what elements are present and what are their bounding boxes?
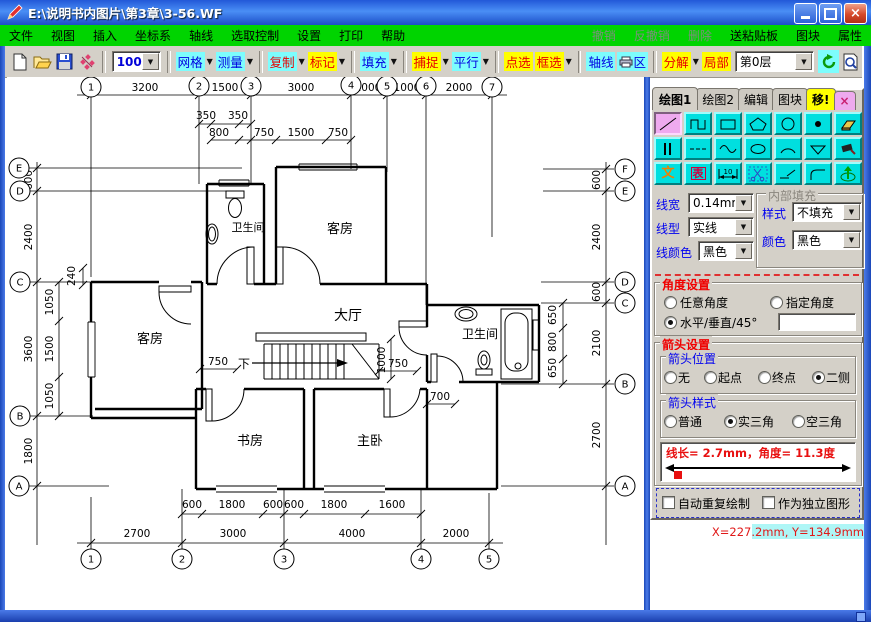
measure-button[interactable]: 测量 (216, 52, 245, 71)
axis-bubble-label: 3 (281, 555, 287, 566)
tab-edit[interactable]: 编辑 (738, 88, 774, 110)
tool-extend-button[interactable] (774, 162, 802, 185)
arrow-pos-start-radio[interactable] (704, 371, 717, 384)
chord-icon (808, 141, 828, 157)
dimension-label: 750 (254, 127, 274, 139)
dimension-label: 1800 (23, 438, 35, 465)
print-preview-icon (842, 53, 859, 71)
dimension-label: 2400 (591, 224, 603, 251)
tool-curve-button[interactable] (714, 137, 742, 160)
tool-table-button[interactable]: 表 (684, 162, 712, 185)
arrow-position-title: 箭头位置 (666, 350, 718, 367)
tool-dashed-line-button[interactable] (684, 137, 712, 160)
dimension-icon: 10 (717, 166, 739, 182)
line-type-value: 实线 (689, 219, 721, 236)
fill-style-label: 样式 (762, 205, 786, 222)
independent-checkbox[interactable] (762, 496, 775, 509)
dimension-label: 650 (547, 358, 559, 378)
line-width-label: 线宽 (656, 196, 680, 213)
svg-text:10: 10 (724, 168, 733, 176)
panel-tabs: 绘图1 绘图2 编辑 图块 移! × (652, 90, 862, 110)
zoom-combobox[interactable]: 100% ▼ (112, 51, 161, 72)
title-bar[interactable]: E:\说明书内图片\第3章\3-56.WF × (0, 0, 871, 25)
menu-bar: 文件 视图 插入 坐标系 轴线 选取控制 设置 打印 帮助 撤销 反撤销 删除 … (0, 25, 871, 46)
toolbar-separator (403, 51, 407, 73)
dimension-label: 350 (196, 110, 216, 122)
doors (159, 247, 463, 421)
dimension-label: 600 (284, 499, 304, 511)
dimension-label: 4000 (339, 528, 366, 540)
dimension-label: 3600 (23, 336, 35, 363)
toilet-tank (226, 191, 244, 198)
text-tool-glyph: 文 (661, 167, 674, 180)
axis-bubble-label: 3 (248, 82, 254, 93)
tool-polygon-button[interactable] (744, 112, 772, 135)
stair-direction-arrow (337, 359, 348, 367)
brush-icon (838, 141, 858, 157)
dimension-label: 3000 (220, 528, 247, 540)
fill-style-value: 不填充 (793, 204, 837, 221)
scissors-icon (748, 166, 768, 182)
line-info-text: 线长= 2.7mm，角度= 11.3度 (666, 445, 835, 461)
window-title: E:\说明书内图片\第3章\3-56.WF (28, 3, 222, 22)
menu-redo[interactable]: 反撤销 (625, 25, 679, 46)
dimension-label: 600 (591, 170, 603, 190)
tool-dimension-button[interactable]: 10 (714, 162, 742, 185)
dimension-label: 1800 (219, 499, 246, 511)
menu-view[interactable]: 视图 (42, 25, 84, 46)
frame-bottom-border (0, 610, 871, 622)
pentagon-icon (748, 116, 768, 132)
room-label: 客房 (327, 221, 353, 237)
angle-any-radio[interactable] (664, 296, 677, 309)
tab-move[interactable]: 移! (806, 88, 835, 110)
layer-combobox[interactable]: 第0层 ▼ (735, 51, 815, 72)
menu-undo[interactable]: 撤销 (583, 25, 625, 46)
printer-icon (619, 56, 633, 68)
grid-dropdown-icon[interactable]: ▼ (207, 57, 213, 66)
mark-button[interactable]: 标记 (308, 52, 337, 71)
arrow-style-hollow-radio[interactable] (792, 415, 805, 428)
line-color-combobox[interactable]: 黑色 ▼ (698, 241, 754, 261)
resize-grip[interactable] (856, 612, 866, 622)
save-floppy-icon (56, 53, 73, 70)
preview-handle[interactable] (674, 471, 682, 479)
dimension-label: 800 (547, 332, 559, 352)
preview-arrowhead-left (665, 464, 674, 472)
room-label: 大厅 (334, 308, 362, 324)
spray-tool-button[interactable] (77, 50, 97, 73)
tool-chord-button[interactable] (804, 137, 832, 160)
toolbar-separator (495, 51, 499, 73)
ellipse-icon (748, 141, 768, 157)
axis-bubble-label: E (622, 187, 628, 198)
tool-ellipse-button[interactable] (744, 137, 772, 160)
parallel-lines-icon (658, 141, 678, 157)
tool-line-button[interactable] (654, 112, 682, 135)
dimension-label: 2700 (591, 422, 603, 449)
refresh-icon (821, 54, 837, 70)
arrow-style-hollow-label: 空三角 (806, 413, 842, 430)
toolbar-separator (351, 51, 355, 73)
arrow-style-normal-radio[interactable] (664, 415, 677, 428)
fillet-icon (808, 166, 828, 182)
axis-bubble-label: B (17, 412, 24, 423)
parallel-button[interactable]: 平行 (452, 52, 481, 71)
menu-file[interactable]: 文件 (0, 25, 42, 46)
polyline-icon (688, 116, 708, 132)
tool-elevate-button[interactable] (834, 162, 862, 185)
tab-draw2[interactable]: 绘图2 (696, 88, 740, 110)
axis-bubbles: 1234567EDCBAFEDCBA12345 (9, 77, 635, 569)
axis-bubble-label: C (17, 278, 24, 289)
tool-point-button[interactable] (804, 112, 832, 135)
axis-bubble-label: 7 (489, 83, 495, 94)
line-width-combobox[interactable]: 0.14mm ▼ (688, 193, 754, 213)
room-label: 下 (238, 357, 250, 371)
dimension-ticks (33, 91, 610, 547)
elevate-icon (838, 166, 858, 182)
dimension-label: 600 (263, 499, 283, 511)
new-file-button[interactable] (10, 50, 30, 73)
angle-specified-label: 指定角度 (786, 294, 834, 311)
tool-text-button[interactable]: 文 (654, 162, 682, 185)
dimension-label: 2700 (124, 528, 151, 540)
partial-button[interactable]: 局部 (702, 52, 731, 71)
axis-bubble-label: E (16, 164, 22, 175)
print-area-label: 区 (633, 52, 646, 71)
dimension-label: 800 (209, 127, 229, 139)
axis-bubble-label: B (622, 380, 629, 391)
dimension-label: 650 (547, 305, 559, 325)
axis-bubble-label: 4 (418, 555, 424, 566)
auto-repeat-label: 自动重复绘制 (678, 495, 750, 512)
snap-dropdown-icon[interactable]: ▼ (443, 57, 449, 66)
box-select-dropdown-icon[interactable]: ▼ (566, 57, 572, 66)
tool-trim-button[interactable] (744, 162, 772, 185)
room-label: 主卧 (357, 434, 383, 449)
dimension-label: 1050 (44, 289, 56, 316)
toolbar-separator (102, 51, 106, 73)
tool-parallel-button[interactable] (654, 137, 682, 160)
drawing-canvas[interactable]: 3200150030001000100020003503508007501500… (7, 77, 644, 610)
panel-close-button[interactable]: × (834, 91, 856, 110)
line-width-dropdown-icon[interactable]: ▼ (735, 195, 752, 211)
dimension-label: 3000 (288, 82, 315, 94)
angle-hv45-radio[interactable] (664, 316, 677, 329)
axis-bubble-label: A (16, 482, 23, 493)
dimension-label: 2000 (446, 82, 473, 94)
axis-bubble-label: 6 (423, 82, 429, 93)
staircase (252, 333, 379, 379)
toilet-bowl (478, 351, 490, 369)
line-type-label: 线型 (656, 220, 680, 237)
dimension-label: 1600 (379, 499, 406, 511)
tool-polyline-button[interactable] (684, 112, 712, 135)
arc-icon (778, 141, 798, 157)
fill-color-combobox[interactable]: 黑色 ▼ (792, 230, 862, 250)
fill-dropdown-icon[interactable]: ▼ (391, 57, 397, 66)
arrow-pos-start-label: 起点 (718, 369, 742, 386)
curve-icon (718, 141, 738, 157)
zoom-dropdown-icon[interactable]: ▼ (142, 53, 159, 70)
print-area-button[interactable]: 区 (617, 52, 648, 71)
menu-coordsys[interactable]: 坐标系 (126, 25, 180, 46)
line-color-label: 线颜色 (656, 244, 692, 261)
floor-plan: 3200150030001000100020003503508007501500… (7, 77, 644, 610)
toolbar-separator (578, 51, 582, 73)
toolbar-separator (167, 51, 171, 73)
fill-button[interactable]: 填充 (360, 52, 389, 71)
room-label: 卫生间 (462, 327, 498, 341)
toilet-base (476, 369, 492, 375)
toolbar-separator (653, 51, 657, 73)
layer-value: 第0层 (736, 53, 776, 70)
axis-bubble-label: D (621, 278, 629, 289)
independent-label: 作为独立图形 (778, 495, 850, 512)
maximize-button[interactable] (819, 3, 842, 24)
arrow-style-solid-label: 实三角 (738, 413, 774, 430)
menu-help[interactable]: 帮助 (372, 25, 414, 46)
explode-dropdown-icon[interactable]: ▼ (693, 57, 699, 66)
fill-color-dropdown-icon[interactable]: ▼ (843, 232, 860, 248)
axis-bubble-label: 1 (88, 555, 94, 566)
cursor-coordinates: X=227.2mm, Y=134.9mm (752, 524, 864, 539)
line-type-combobox[interactable]: 实线 ▼ (688, 217, 754, 237)
toolbar: 100% ▼ 网格▼ 测量▼ 复制▼ 标记▼ 填充▼ 捕捉▼ 平行▼ 点选 框选… (5, 46, 862, 78)
dimension-label: 750 (328, 127, 348, 139)
menu-settings[interactable]: 设置 (288, 25, 330, 46)
tool-circle-button[interactable] (774, 112, 802, 135)
dimension-label: 1050 (44, 383, 56, 410)
room-label: 卫生间 (232, 220, 265, 234)
table-tool-glyph: 表 (691, 167, 706, 180)
copy-button[interactable]: 复制 (268, 52, 297, 71)
axis-bubble-label: 4 (348, 81, 354, 92)
arrow-style-title: 箭头样式 (666, 394, 718, 411)
snap-button[interactable]: 捕捉 (412, 52, 441, 71)
dashed-line-icon (688, 141, 708, 157)
tool-arc-button[interactable] (774, 137, 802, 160)
extend-icon (778, 166, 798, 182)
tool-rectangle-button[interactable] (714, 112, 742, 135)
dimension-label: 750 (388, 358, 408, 370)
frame-right-border (864, 46, 871, 610)
dimension-label: 600 (591, 282, 603, 302)
point-select-button[interactable]: 点选 (504, 52, 533, 71)
rectangle-icon (718, 116, 738, 132)
angle-group-title: 角度设置 (660, 276, 712, 293)
dimension-label: 1500 (288, 127, 315, 139)
save-button[interactable] (55, 50, 75, 73)
axis-bubble-label: 2 (179, 555, 185, 566)
dimension-label: 2000 (443, 528, 470, 540)
open-file-button[interactable] (32, 50, 52, 73)
open-folder-icon (33, 54, 52, 70)
axis-bubble-label: D (16, 187, 24, 198)
line-color-value: 黑色 (699, 243, 731, 260)
preview-line (674, 467, 842, 469)
tab-block[interactable]: 图块 (772, 88, 808, 110)
grid-button[interactable]: 网格 (176, 52, 205, 71)
menu-clipboard[interactable]: 送粘贴板 (721, 25, 787, 46)
auto-repeat-checkbox[interactable] (662, 496, 675, 509)
dimension-lines (29, 95, 614, 549)
line-color-dropdown-icon[interactable]: ▼ (735, 243, 752, 259)
axis-button[interactable]: 轴线 (586, 52, 615, 71)
toolbar-separator (259, 51, 263, 73)
app-pencil-icon (6, 4, 23, 21)
dimension-label: 1500 (44, 336, 56, 363)
eraser-icon (838, 116, 858, 132)
tool-fillet-button[interactable] (804, 162, 832, 185)
frame-left-border (0, 46, 5, 610)
dimension-label: 350 (228, 110, 248, 122)
line-type-dropdown-icon[interactable]: ▼ (735, 219, 752, 235)
minimize-button[interactable] (794, 3, 817, 24)
tool-panel: 绘图1 绘图2 编辑 图块 移! × (650, 88, 864, 520)
box-select-button[interactable]: 框选 (535, 52, 564, 71)
angle-input[interactable] (778, 313, 856, 331)
room-label: 客房 (137, 331, 163, 347)
dimension-label: 700 (430, 391, 450, 403)
arrow-pos-end-radio[interactable] (758, 371, 771, 384)
dimension-label: 600 (182, 499, 202, 511)
axis-bubble-label: 5 (486, 555, 492, 566)
dimension-label: 3200 (132, 82, 159, 94)
tool-brush-button[interactable] (834, 137, 862, 160)
menu-block[interactable]: 图块 (787, 25, 829, 46)
menu-delete[interactable]: 删除 (679, 25, 721, 46)
dimension-label: 1000 (376, 347, 388, 374)
new-file-icon (12, 53, 28, 71)
dimension-label: 2400 (23, 224, 35, 251)
tool-eraser-button[interactable] (834, 112, 862, 135)
fill-style-dropdown-icon[interactable]: ▼ (843, 204, 860, 220)
line-icon (658, 116, 678, 132)
dimension-label: 1500 (212, 82, 239, 94)
axis-bubble-label: 5 (384, 82, 390, 93)
explode-button[interactable]: 分解 (662, 52, 691, 71)
menu-properties[interactable]: 属性 (829, 25, 871, 46)
fill-color-value: 黑色 (793, 232, 825, 249)
point-icon (808, 116, 828, 132)
layer-dropdown-icon[interactable]: ▼ (795, 53, 812, 70)
arrow-pos-none-label: 无 (678, 369, 690, 386)
print-preview-button[interactable] (841, 50, 861, 73)
toilet-bowl (229, 199, 242, 218)
arrow-style-normal-label: 普通 (678, 413, 702, 430)
menu-axis[interactable]: 轴线 (180, 25, 222, 46)
application-window: E:\说明书内图片\第3章\3-56.WF × 文件 视图 插入 坐标系 轴线 … (0, 0, 871, 622)
dimension-label: 1800 (321, 499, 348, 511)
arrow-style-solid-radio[interactable] (724, 415, 737, 428)
spray-icon (78, 53, 96, 71)
axis-bubble-label: F (622, 165, 628, 176)
menu-insert[interactable]: 插入 (84, 25, 126, 46)
tab-draw1[interactable]: 绘图1 (652, 87, 698, 110)
preview-arrowhead-right (842, 464, 851, 472)
menu-select-control[interactable]: 选取控制 (222, 25, 288, 46)
arrow-pos-both-label: 二侧 (826, 369, 850, 386)
close-button[interactable]: × (844, 3, 867, 24)
arrow-pos-none-radio[interactable] (664, 371, 677, 384)
dimension-label: 2100 (591, 330, 603, 357)
angle-any-label: 任意角度 (680, 294, 728, 311)
fill-color-label: 颜色 (762, 233, 786, 250)
fill-style-combobox[interactable]: 不填充 ▼ (792, 202, 862, 222)
dimension-label: 240 (66, 266, 78, 286)
measure-dropdown-icon[interactable]: ▼ (247, 57, 253, 66)
angle-hv45-label: 水平/垂直/45° (680, 314, 757, 331)
dimension-label: 750 (208, 356, 228, 368)
arrow-pos-both-radio[interactable] (812, 371, 825, 384)
copy-dropdown-icon[interactable]: ▼ (299, 57, 305, 66)
parallel-dropdown-icon[interactable]: ▼ (483, 57, 489, 66)
axis-bubble-label: C (622, 299, 629, 310)
mark-dropdown-icon[interactable]: ▼ (339, 57, 345, 66)
angle-specified-radio[interactable] (770, 296, 783, 309)
menu-print[interactable]: 打印 (330, 25, 372, 46)
axis-bubble-label: 2 (196, 82, 202, 93)
axis-bubble-label: A (622, 482, 629, 493)
circle-icon (778, 116, 798, 132)
room-label: 书房 (237, 433, 263, 449)
tool-grid: 文 表 10 (653, 111, 864, 186)
axis-bubble-label: 1 (88, 83, 94, 94)
refresh-button[interactable] (818, 50, 838, 73)
arrow-pos-end-label: 终点 (772, 369, 796, 386)
